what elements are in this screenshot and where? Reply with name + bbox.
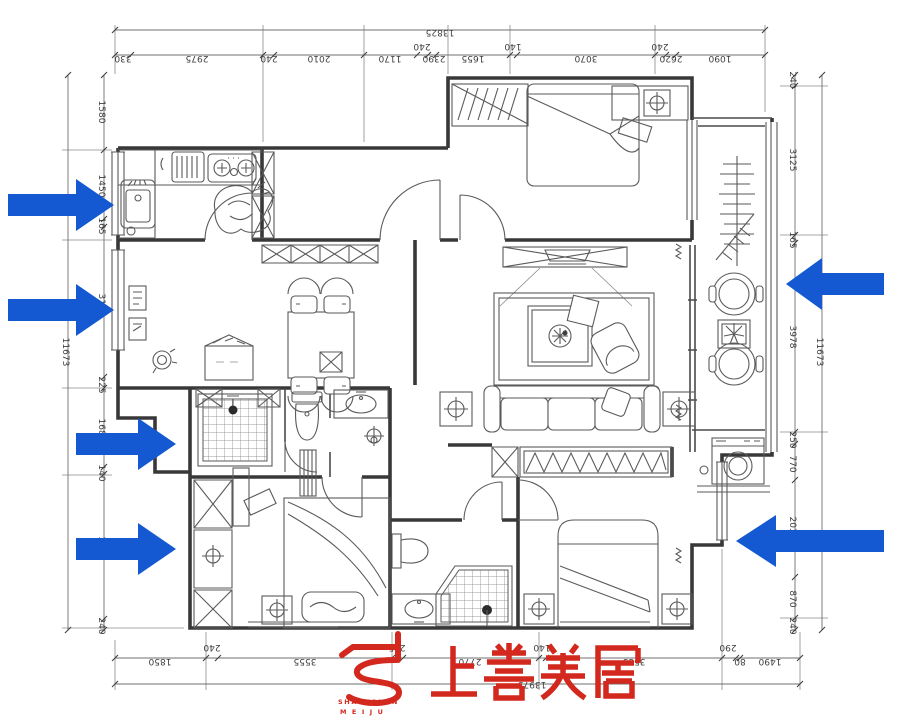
bed-3	[558, 520, 658, 628]
dim-label: 770	[787, 455, 797, 472]
dim-label: 80	[734, 656, 746, 666]
arrow-right-2	[736, 515, 884, 567]
dim-label: 240	[413, 41, 430, 51]
armchair	[588, 320, 642, 377]
nightstand-3-right	[662, 594, 692, 624]
dim-label: 11673	[60, 338, 70, 367]
ceiling-light-icon	[646, 92, 668, 114]
nightstand-3-left	[524, 594, 554, 624]
toilet-2-icon	[392, 534, 428, 568]
dim-label: 240	[787, 617, 797, 634]
dim-label: 140	[504, 41, 521, 51]
dim-label: 1090	[708, 53, 731, 63]
master-bedroom	[452, 84, 688, 186]
dim-label: 165	[787, 231, 797, 248]
dim-label: 2390	[422, 53, 445, 63]
bedroom-3	[520, 447, 692, 628]
dim-label: 1170	[378, 53, 401, 63]
dimension-top: 13825 330 2975 240 2010 1170 240 2390 16…	[112, 27, 768, 63]
balcony-chair-bottom	[709, 343, 763, 385]
sofa	[484, 386, 660, 432]
brand-name-en-2: M E I J U	[340, 708, 384, 716]
tv-cabinet	[500, 247, 632, 306]
stove-icon	[208, 154, 256, 182]
toilet-icon	[292, 392, 322, 440]
dim-label: 165	[96, 217, 106, 234]
dim-label: 290	[719, 642, 736, 652]
arrow-left-3	[76, 418, 176, 470]
balcony	[709, 156, 763, 385]
dim-label: 3555	[294, 656, 317, 666]
washing-machine-icon	[700, 438, 764, 484]
wardrobe-3	[520, 447, 672, 477]
dim-label: 240	[651, 41, 668, 51]
dim-label: 1490	[758, 656, 781, 666]
shower-icon	[198, 394, 272, 466]
floor-pillow	[567, 295, 599, 327]
nightstand-2	[262, 596, 292, 624]
dim-label: 250	[787, 431, 797, 448]
hall-fixtures	[129, 286, 253, 380]
bathroom-2	[364, 426, 512, 626]
dim-label: 140	[96, 464, 106, 481]
floor-plan-canvas: 13825 330 2975 240 2010 1170 240 2390 16…	[0, 0, 900, 720]
brand-name-en: SHANGSHAN	[338, 698, 399, 706]
dim-label: 240	[96, 617, 106, 634]
dim-label: 3125	[787, 149, 797, 172]
dim-label: 3070	[574, 53, 597, 63]
arrow-right-1	[786, 258, 884, 310]
dim-label: 225	[96, 376, 106, 393]
dim-label: 870	[787, 590, 797, 607]
dim-label: 240	[260, 53, 277, 63]
brand-logo: SHANGSHAN M E I J U 上善美居	[338, 634, 638, 716]
plant-icon	[716, 156, 755, 266]
kitchen	[118, 150, 273, 238]
balcony-table	[718, 320, 750, 348]
shower-2-icon	[436, 566, 512, 626]
dim-label: 2975	[186, 53, 209, 63]
dim-label: 13825	[426, 27, 455, 37]
dim-label: 1580	[96, 101, 106, 124]
bed-master	[527, 84, 639, 186]
dim-label: 2010	[307, 53, 330, 63]
balcony-chair-top	[709, 273, 763, 315]
shoe-cabinet	[205, 335, 253, 380]
arrow-left-2	[8, 284, 114, 336]
stool-icon	[153, 349, 177, 373]
dim-label: 1850	[148, 656, 171, 666]
dim-label: 3978	[787, 326, 797, 349]
wardrobe-icon	[452, 84, 528, 126]
living-room	[440, 293, 695, 432]
dim-label: 1655	[462, 53, 485, 63]
bathroom-1	[198, 390, 388, 466]
windows	[111, 120, 778, 627]
bed-2	[284, 498, 390, 628]
dim-label: 240	[203, 642, 220, 652]
dim-label: 11673	[814, 338, 824, 367]
dim-label: 2620	[659, 53, 682, 63]
laundry	[697, 438, 770, 492]
kitchen-appliance-icon	[161, 152, 204, 182]
kitchen-decor	[214, 178, 272, 233]
floor-plan-screenshot: 13825 330 2975 240 2010 1170 240 2390 16…	[0, 0, 900, 720]
kitchen-sink-icon	[121, 180, 155, 228]
dim-label: 330	[114, 53, 131, 63]
arrow-left-4	[76, 523, 176, 575]
walls	[118, 78, 772, 628]
logo-monogram-icon	[342, 634, 399, 703]
dim-label: 240	[787, 71, 797, 88]
side-table-left	[440, 392, 472, 426]
